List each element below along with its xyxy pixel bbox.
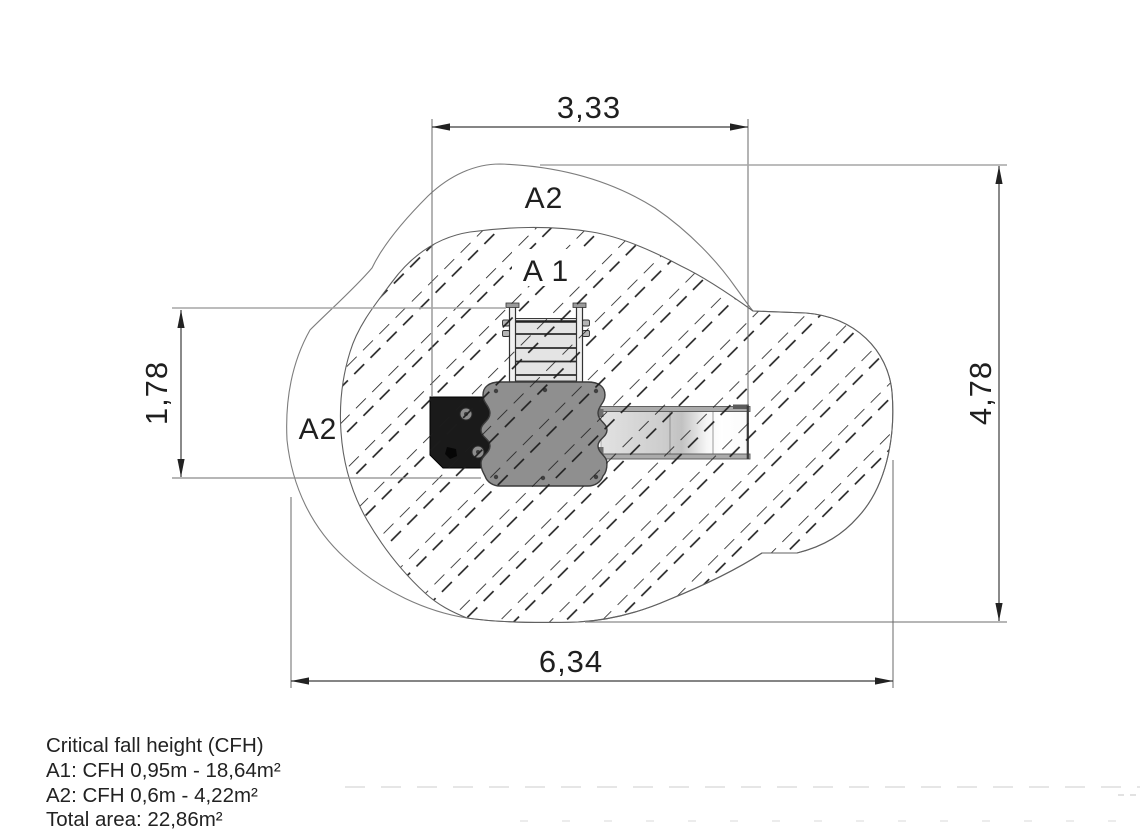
arrowhead xyxy=(730,123,748,130)
legend-line-a1: A1: CFH 0,95m - 18,64m² xyxy=(46,759,281,782)
arrowhead xyxy=(291,677,309,684)
scan-artifacts xyxy=(345,787,1140,821)
dimension-value-top: 3,33 xyxy=(557,90,621,125)
arrowhead xyxy=(432,123,450,130)
arrowhead xyxy=(995,603,1002,621)
drawing-sheet: A2 A 1 A2 3,33 1,78 4,78 6,3 xyxy=(0,0,1143,837)
impact-area-a1-hatch xyxy=(340,227,892,622)
legend-title: Critical fall height (CFH) xyxy=(46,734,264,757)
zone-label-a1: A 1 xyxy=(523,255,569,288)
legend: Critical fall height (CFH) A1: CFH 0,95m… xyxy=(46,734,281,831)
dimension-value-left: 1,78 xyxy=(139,361,174,425)
arrowhead xyxy=(875,677,893,684)
technical-drawing: A2 A 1 A2 3,33 1,78 4,78 6,3 xyxy=(0,0,1143,837)
dimension-value-right: 4,78 xyxy=(963,361,998,425)
arrowhead xyxy=(177,310,184,328)
legend-line-total: Total area: 22,86m² xyxy=(46,808,223,831)
zone-label-a2-left: A2 xyxy=(299,413,338,446)
legend-line-a2: A2: CFH 0,6m - 4,22m² xyxy=(46,784,258,807)
dimension-value-bottom: 6,34 xyxy=(539,644,603,679)
zone-label-a2-top: A2 xyxy=(525,182,564,215)
arrowhead xyxy=(177,459,184,477)
arrowhead xyxy=(995,166,1002,184)
